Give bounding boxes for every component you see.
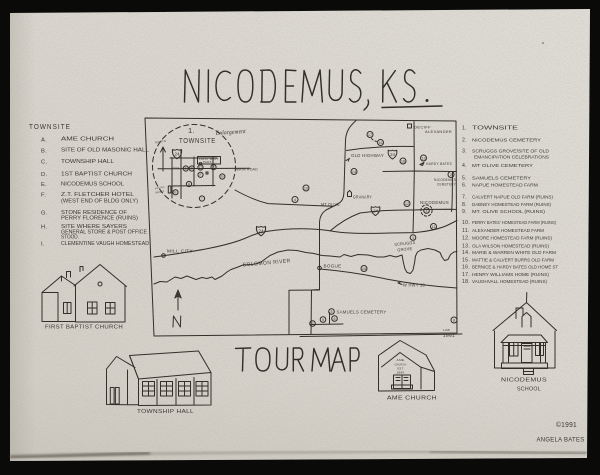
svg-text:CALVERT NAPUE OLD FARM (RUINS): CALVERT NAPUE OLD FARM (RUINS) [472,195,553,201]
svg-text:MAIN ROAD: MAIN ROAD [236,167,258,172]
svg-text:5.: 5. [462,175,467,181]
svg-text:10.: 10. [462,220,470,226]
svg-text:NICODEMUS: NICODEMUS [434,178,456,182]
svg-text:MT. OLIVE SCHOOL (RUINS): MT. OLIVE SCHOOL (RUINS) [472,209,545,215]
svg-text:SAMUELS CEMETERY: SAMUELS CEMETERY [472,175,532,181]
svg-text:12: 12 [405,202,409,206]
svg-text:4: 4 [294,198,296,202]
svg-text:HARDY BATES: HARDY BATES [426,162,452,166]
svg-text:6.: 6. [462,183,467,189]
svg-text:1: 1 [425,209,427,213]
svg-text:17: 17 [368,133,372,137]
svg-text:1885: 1885 [397,371,405,375]
svg-text:OLD HIGHWAY: OLD HIGHWAY [351,153,384,158]
svg-text:F.: F. [41,193,46,199]
svg-text:3.: 3. [462,149,467,155]
svg-text:ALEXANDER: ALEXANDER [425,129,452,134]
svg-text:9.: 9. [462,209,467,215]
svg-text:15.: 15. [462,257,470,263]
svg-text:C.: C. [41,160,47,166]
svg-text:11.: 11. [462,228,470,234]
svg-text:PARK: PARK [203,161,212,164]
svg-text:NICODEMUS: NICODEMUS [501,378,547,384]
svg-text:NICODEMUS CEMETERY: NICODEMUS CEMETERY [472,138,542,144]
svg-text:10: 10 [304,186,308,190]
svg-text:F: F [199,173,201,177]
svg-text:24: 24 [174,152,180,157]
svg-text:PERRY BATES' HOMESTEAD FARM (R: PERRY BATES' HOMESTEAD FARM (RUINS) [472,220,556,226]
svg-text:1991: 1991 [443,333,455,338]
svg-text:SCHOOL: SCHOOL [517,387,541,393]
svg-text:©1991: ©1991 [556,421,577,429]
svg-text:TOWNSITE: TOWNSITE [29,122,71,131]
svg-text:ALEXANDER HOMESTEAD FARM: ALEXANDER HOMESTEAD FARM [472,228,544,234]
svg-text:VAUGHVALL HOMESTEAD (RUINS): VAUGHVALL HOMESTEAD (RUINS) [472,279,547,285]
svg-text:TOWNSITE: TOWNSITE [179,136,216,145]
svg-text:4.: 4. [462,163,467,169]
svg-text:18.: 18. [462,279,470,285]
svg-text:OLA WILSON HOMESTEAD (RUINS): OLA WILSON HOMESTEAD (RUINS) [472,243,549,249]
svg-text:G: G [221,175,224,179]
svg-text:A.: A. [41,138,47,144]
svg-text:(WEST END OF BLDG ONLY): (WEST END OF BLDG ONLY) [61,199,138,205]
svg-text:TOWNSITE: TOWNSITE [472,125,519,131]
svg-text:B.: B. [41,149,47,155]
svg-text:EMANCIPATION CELEBRATIONS: EMANCIPATION CELEBRATIONS [474,155,549,161]
svg-text:MATTIE & CALVERT BURRS OLD FAR: MATTIE & CALVERT BURRS OLD FARM [472,257,554,263]
svg-text:BOGUE: BOGUE [324,264,342,269]
svg-text:6: 6 [334,317,336,321]
svg-text:14.: 14. [462,250,470,256]
svg-text:8: 8 [453,318,455,322]
svg-text:2.: 2. [462,138,467,144]
svg-text:12.: 12. [462,236,470,242]
svg-text:I.: I. [41,242,45,248]
svg-text:I: I [202,197,203,201]
svg-text:DABNEY HOMESTEAD FARM (RUINS): DABNEY HOMESTEAD FARM (RUINS) [472,202,551,208]
svg-text:16: 16 [378,141,382,145]
svg-text:MILL CITY: MILL CITY [167,249,193,254]
svg-text:3: 3 [412,236,414,240]
svg-text:TOWNSHIP HALL: TOWNSHIP HALL [137,409,194,415]
svg-text:15: 15 [362,267,366,271]
svg-text:1.: 1. [462,125,467,131]
svg-text:HENRY WILLIAMS HOME (RUINS): HENRY WILLIAMS HOME (RUINS) [472,272,549,278]
svg-text:AME CHURCH: AME CHURCH [387,396,437,402]
svg-text:MOORE HOMESTEAD FARM (RUINS): MOORE HOMESTEAD FARM (RUINS) [472,236,552,242]
svg-text:MT OLIVE: MT OLIVE [321,202,340,207]
svg-text:14: 14 [352,170,356,174]
svg-text:D.: D. [41,172,47,178]
svg-text:Z.T. FLETCHER HOTEL: Z.T. FLETCHER HOTEL [61,192,134,198]
svg-text:TOWNSHIP HALL: TOWNSHIP HALL [61,159,114,165]
svg-text:CEMETERY: CEMETERY [437,183,456,187]
svg-text:1ST BAPTIST CHURCH: 1ST BAPTIST CHURCH [61,172,132,178]
svg-text:LAB: LAB [443,328,450,332]
svg-text:STORE: STORE [172,167,180,170]
svg-text:H.: H. [41,225,47,231]
svg-text:16.: 16. [462,265,470,271]
svg-text:MARIE & WARREN WHITE OLD FARM: MARIE & WARREN WHITE OLD FARM [472,250,556,256]
svg-text:9: 9 [322,318,324,322]
svg-text:BERNICE & HARDY BATES OLD HOME: BERNICE & HARDY BATES OLD HOME ST [472,265,558,271]
svg-text:MT OLIVE CEMETERY: MT OLIVE CEMETERY [472,163,534,169]
svg-text:SAMUELS CEMETERY: SAMUELS CEMETERY [337,310,387,315]
svg-text:7.: 7. [462,195,467,201]
svg-text:2: 2 [450,173,452,177]
svg-text:13: 13 [421,156,425,160]
svg-text:CLEMENTINE VAUGH HOMESTEAD: CLEMENTINE VAUGH HOMESTEAD [61,241,149,247]
svg-text:NAPUE HOMESTEAD FARM: NAPUE HOMESTEAD FARM [472,183,538,189]
svg-text:SITE OF OLD MASONIC HALL: SITE OF OLD MASONIC HALL [61,148,149,154]
svg-text:5: 5 [331,310,333,314]
svg-text:PERRY FLORENCE (RUINS): PERRY FLORENCE (RUINS) [61,216,138,222]
svg-text:24: 24 [390,152,395,157]
svg-text:E.: E. [41,182,47,188]
svg-text:SCRUGGS GROVE/SITE OF OLD: SCRUGGS GROVE/SITE OF OLD [472,149,550,155]
svg-text:G.: G. [41,211,48,217]
svg-text:FIRST BAPTIST CHURCH: FIRST BAPTIST CHURCH [45,325,123,331]
svg-text:24: 24 [373,209,378,214]
svg-text:NICODEMUS SCHOOL: NICODEMUS SCHOOL [61,182,124,188]
svg-text:ANGELA BATES: ANGELA BATES [537,437,585,444]
svg-text:11: 11 [432,225,436,229]
svg-text:7: 7 [312,322,314,326]
svg-text:GRANARY: GRANARY [353,195,372,200]
svg-text:AME CHURCH: AME CHURCH [61,137,114,143]
svg-text:8.: 8. [462,202,467,208]
svg-text:STOOD.: STOOD. [61,235,79,241]
svg-text:W HWY 18: W HWY 18 [403,283,425,288]
svg-text:24: 24 [258,229,264,234]
svg-text:1.: 1. [188,126,195,135]
svg-text:13.: 13. [462,243,470,249]
svg-text:18: 18 [401,159,405,163]
svg-text:NICODEMUS: NICODEMUS [420,200,449,205]
svg-text:17.: 17. [462,272,470,278]
